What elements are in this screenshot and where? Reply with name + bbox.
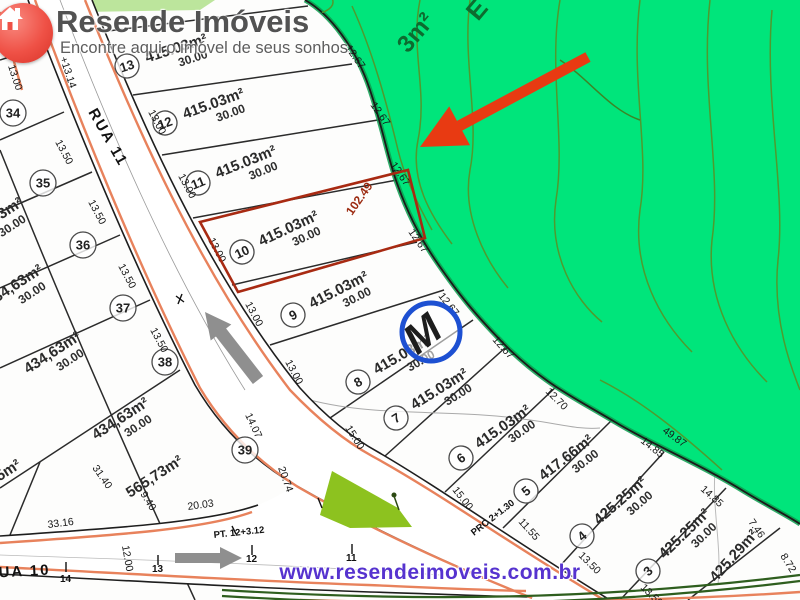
listing-map-image: E 3m² 13 415.03m² 30.00 12 415.03m² 30.0… [0, 0, 800, 600]
svg-text:36: 36 [76, 238, 90, 253]
station-number: 13 [152, 564, 164, 575]
svg-text:39: 39 [238, 443, 252, 458]
plat-map: E 3m² 13 415.03m² 30.00 12 415.03m² 30.0… [0, 0, 800, 600]
brand-logo [0, 3, 53, 63]
svg-text:37: 37 [116, 301, 130, 316]
brand-title: Resende Imóveis [56, 4, 309, 40]
house-icon [0, 3, 27, 35]
lot-label-36: 36 [70, 232, 96, 258]
watermark-url: www.resendeimoveis.com.br [210, 561, 650, 585]
svg-text:38: 38 [158, 355, 172, 370]
brand-header: Resende Imóveis Encontre aqui o imóvel d… [0, 0, 420, 64]
brand-tagline: Encontre aqui o imóvel de seus sonhos [60, 39, 348, 58]
lot-label-39: 39 [232, 437, 258, 463]
lot-label-37: 37 [110, 295, 136, 321]
lot-label-35: 35 [30, 170, 56, 196]
street-label-rua10: RUA 10 [0, 562, 51, 582]
svg-text:34: 34 [6, 106, 21, 121]
svg-text:35: 35 [36, 176, 50, 191]
station-number: 14 [60, 574, 72, 585]
lot-label-34: 34 [0, 100, 26, 126]
lot-label-38: 38 [152, 349, 178, 375]
